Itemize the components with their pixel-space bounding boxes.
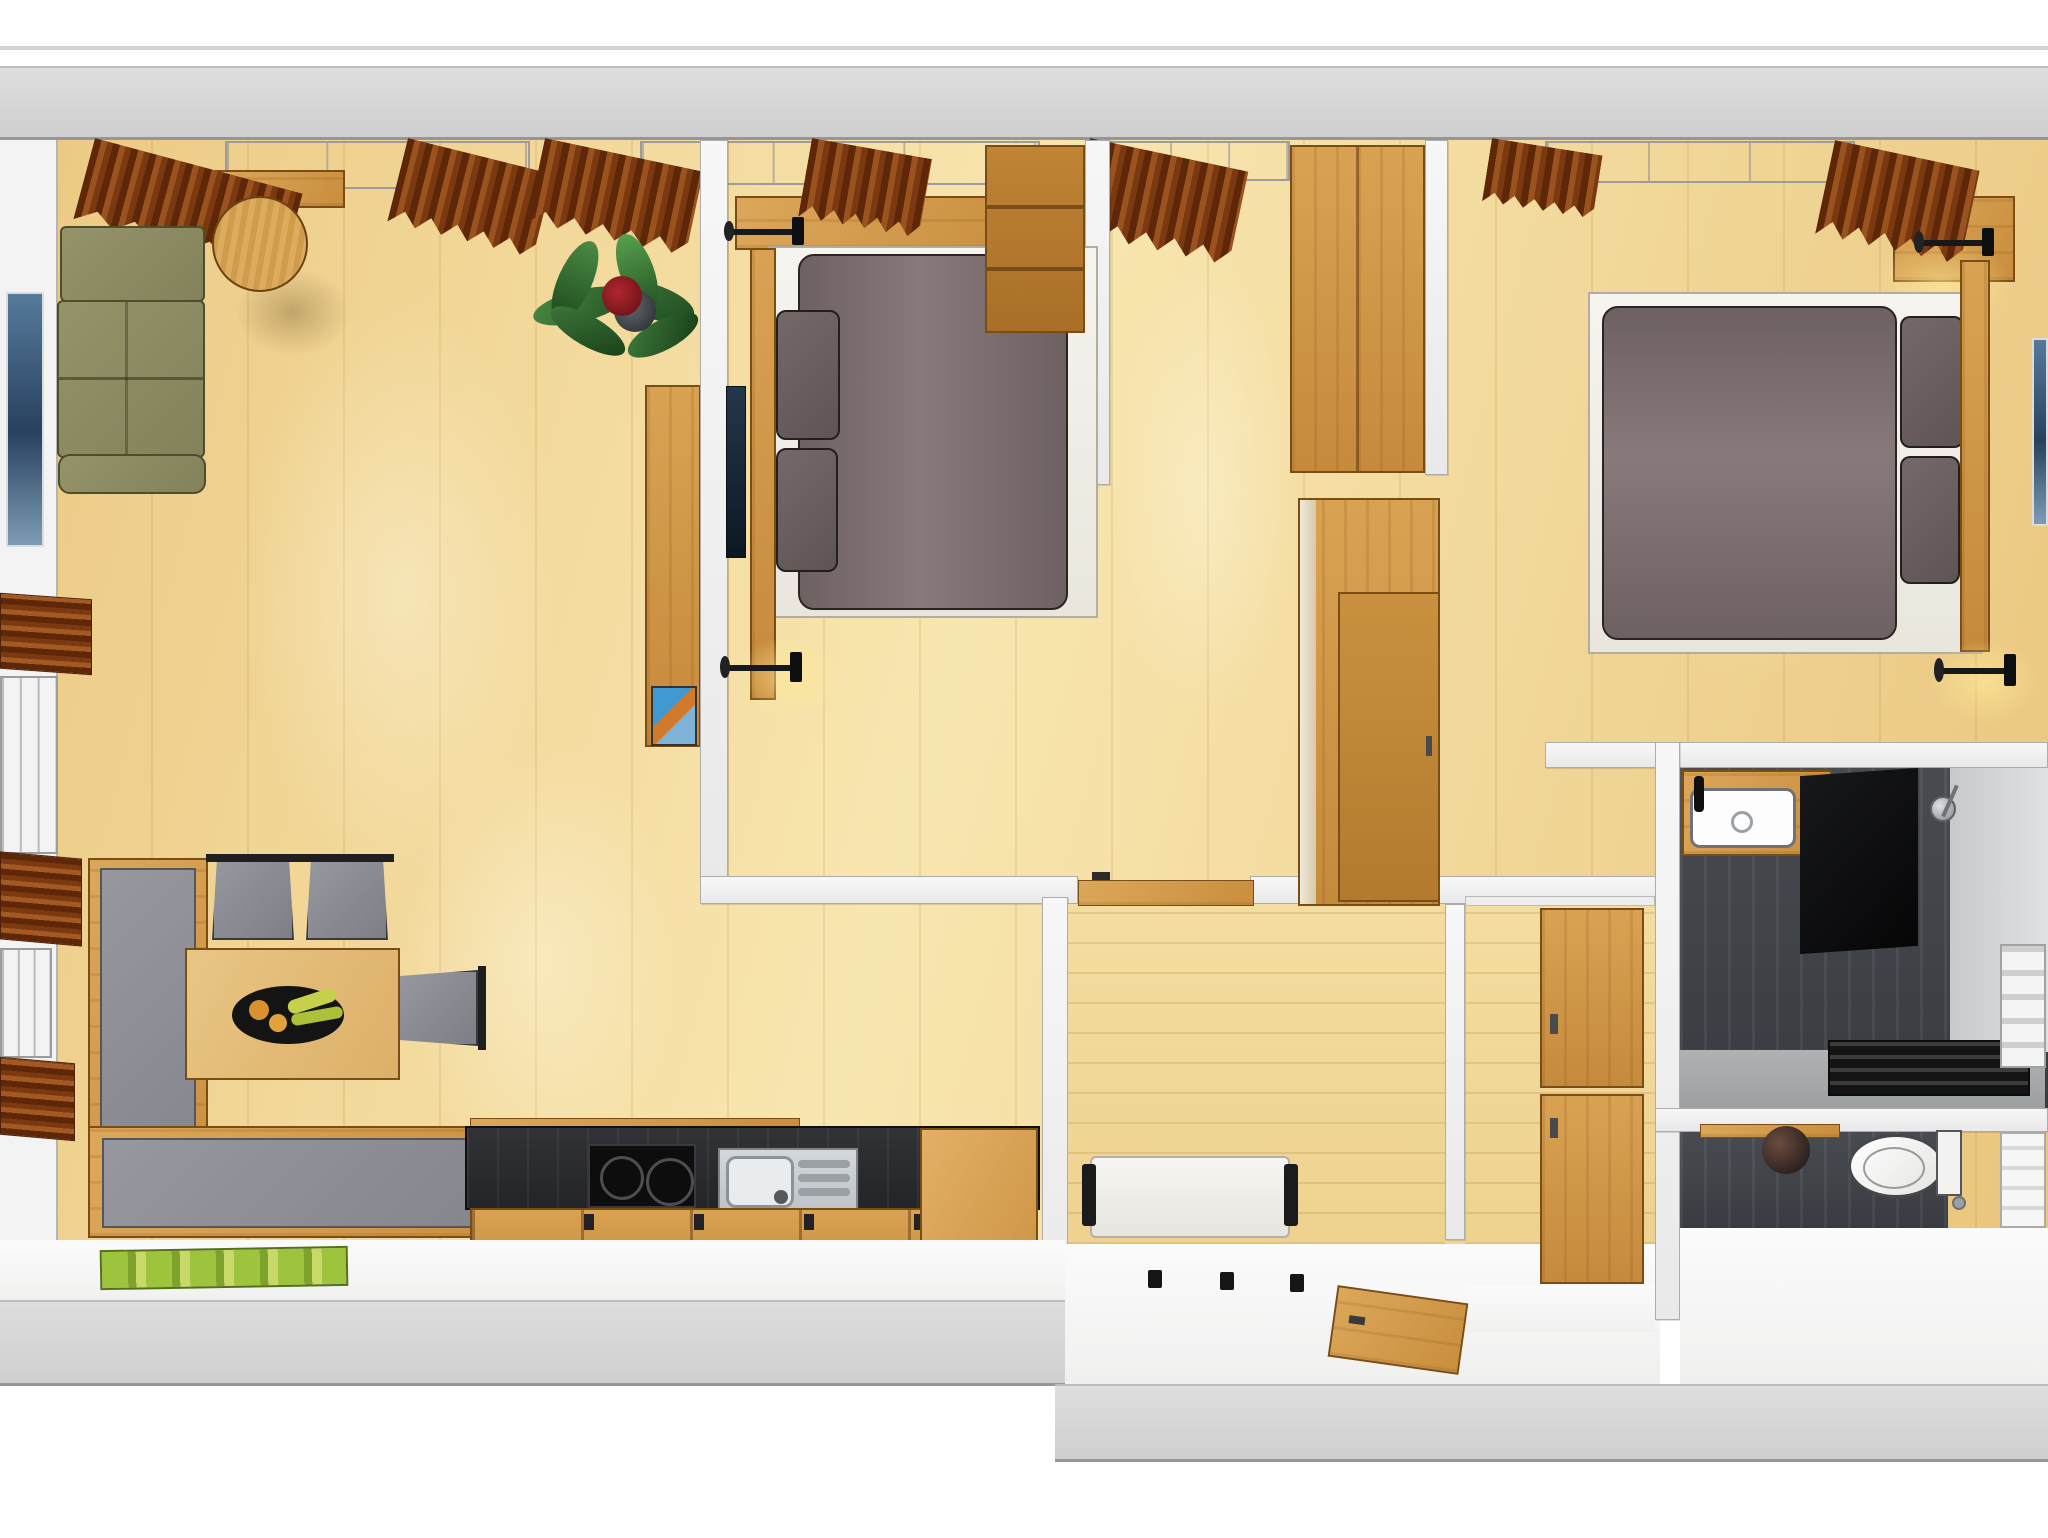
closet-top-edge [1465,896,1655,906]
coat-hook [1148,1270,1162,1288]
potted-plant [528,232,703,377]
pendant-lamp [1762,1126,1810,1174]
frame-line [0,46,2048,50]
window-blind [0,851,82,946]
wc-floor [1680,1228,2048,1384]
dining-chair [306,860,388,940]
basin-faucet [1694,776,1704,812]
bench-bracket [1082,1164,1096,1226]
dining-table [185,948,400,1080]
coffee-table [212,196,308,292]
window-left-2 [0,948,52,1058]
reading-lamp [1938,650,2016,690]
floorplan-render [0,0,2048,1538]
wardrobe-nook [1290,145,1425,473]
pillow [1900,456,1960,584]
shower-glass-panel [1800,768,1918,954]
dining-chair [212,860,294,940]
door-handle [1092,872,1110,880]
wall-nook-bedroom2 [1425,140,1448,475]
sofa-chaise [60,226,205,302]
toilet-bowl [1848,1134,1944,1198]
door-knob [1952,1196,1966,1210]
wall-picture-living [6,292,44,547]
wall-bedroom1-hall [700,876,1078,904]
window-left-1 [0,676,58,854]
reading-lamp [1918,224,1994,260]
outer-wall-top [0,66,2048,140]
wall-tv-bedroom1 [726,386,746,558]
decor-object [651,686,697,746]
sunlight-patch [400,740,680,1180]
closet-door [1540,1094,1644,1284]
green-doormat [100,1246,349,1290]
towel-radiator [2000,944,2046,1068]
wc-door-edge [2000,1132,2046,1228]
wardrobe-bedroom1 [985,145,1085,333]
reading-lamp [724,648,802,686]
wall-bedroom2-bath [1545,742,2048,768]
corridor-end-floor [1465,1286,1655,1332]
closet-door [1540,908,1644,1088]
dining-chair [398,970,478,1046]
wall-corridor-bathroom [1655,742,1680,1320]
coat-hook [1290,1274,1304,1292]
coat-hook [1220,1272,1234,1290]
wall-hall-corridor [1445,904,1465,1240]
sofa-body [57,300,205,458]
headboard-bedroom2 [1960,260,1990,652]
hall-bench [1090,1156,1290,1238]
toilet-cistern [1936,1130,1962,1196]
headboard-bedroom1 [750,248,776,700]
outer-wall-bottom-left [0,1300,1065,1386]
outer-wall-bottom-right [1055,1384,2048,1462]
wall-living-bedroom1 [700,140,728,880]
sunlight-patch [1110,260,1300,720]
bedroom2-door-open [1338,592,1440,902]
duvet-bedroom2 [1602,306,1897,640]
pillow [1900,316,1964,448]
pillow [776,448,838,572]
wall-picture-bedroom2 [2032,338,2048,526]
bedroom1-door-open [1078,880,1254,906]
window-blind [0,593,92,675]
reading-lamp [728,214,804,248]
bench-bracket [1284,1164,1298,1226]
cooktop [588,1144,696,1208]
window-blind [0,1057,75,1142]
kitchen-sink [718,1148,858,1210]
wash-basin [1690,788,1796,848]
sofa-armrest [58,454,206,494]
pillow [776,310,840,440]
